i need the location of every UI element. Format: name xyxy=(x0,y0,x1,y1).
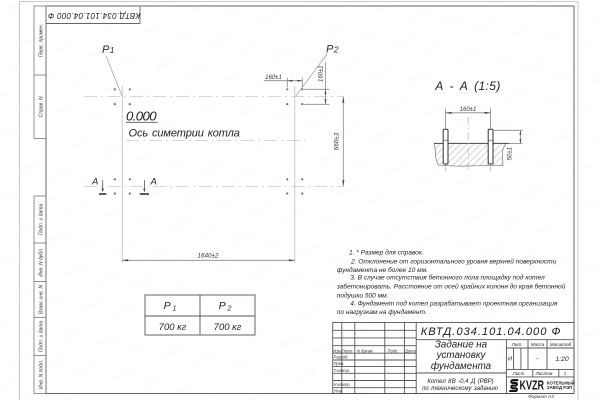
svg-text:Подп. и дата: Подп. и дата xyxy=(39,204,45,236)
svg-text:Инв. N подл.: Инв. N подл. xyxy=(39,360,45,389)
svg-text:подушки 500 мм.: подушки 500 мм. xyxy=(337,291,389,299)
svg-text:И: И xyxy=(508,357,512,363)
svg-text:КВТД.034.101.04.000 Ф: КВТД.034.101.04.000 Ф xyxy=(421,326,562,338)
svg-text:Разраб.: Разраб. xyxy=(334,355,349,360)
svg-text:установку: установку xyxy=(436,350,487,361)
svg-text:Перв. примен.: Перв. примен. xyxy=(39,24,45,57)
svg-text:Ось симетрии котла: Ось симетрии котла xyxy=(129,128,240,140)
svg-text:ЗАВОД РЭП: ЗАВОД РЭП xyxy=(547,385,572,390)
svg-text:1: 1 xyxy=(564,371,567,376)
svg-text:Изм.Лист: Изм.Лист xyxy=(333,348,353,353)
svg-text:3. В случае отсутствия бетонно: 3. В случае отсутствия бетонного пола пл… xyxy=(350,274,545,282)
svg-text:N докум.: N докум. xyxy=(357,348,374,353)
svg-text:Утв.: Утв. xyxy=(334,389,343,394)
svg-text:Масса: Масса xyxy=(531,342,545,347)
svg-text:Справ. N: Справ. N xyxy=(39,96,45,117)
svg-text:Масштаб: Масштаб xyxy=(550,342,572,347)
svg-text:Котел КВ -0,4 Д (РВР): Котел КВ -0,4 Д (РВР) xyxy=(427,379,493,385)
svg-text:фундамента не более 10 мм.: фундамента не более 10 мм. xyxy=(337,266,428,274)
svg-text:160±1: 160±1 xyxy=(460,107,477,113)
svg-text:Лит.: Лит. xyxy=(511,342,523,347)
svg-text:Дата: Дата xyxy=(404,348,417,353)
svg-text:KVZR: KVZR xyxy=(520,378,545,392)
svg-text:Формат А3: Формат А3 xyxy=(528,394,554,399)
svg-text:Т.контр.: Т.контр. xyxy=(334,368,351,373)
svg-text:700 кг: 700 кг xyxy=(159,322,187,333)
svg-text:Пров.: Пров. xyxy=(334,361,345,366)
svg-text:забетонировать. Расстояние от: забетонировать. Расстояние от осей крайн… xyxy=(336,283,566,291)
svg-text:Лист: Лист xyxy=(512,371,525,376)
svg-text:2. Отклонение от горизонтально: 2. Отклонение от горизонтального уровня … xyxy=(350,257,557,265)
svg-text:1. * Размер для справок.: 1. * Размер для справок. xyxy=(349,249,424,257)
svg-text:A: A xyxy=(91,177,98,188)
svg-text:1:20: 1:20 xyxy=(555,356,568,363)
svg-text:160±1: 160±1 xyxy=(318,65,324,82)
svg-text:A: A xyxy=(150,177,157,188)
svg-text:Н.контр.: Н.контр. xyxy=(334,382,351,387)
svg-text:160±1: 160±1 xyxy=(265,75,282,81)
svg-text:4. Фундамент под котел разраба: 4. Фундамент под котел разрабатывает про… xyxy=(350,300,558,308)
svg-text:Подп.: Подп. xyxy=(388,348,399,353)
svg-text:660±3: 660±3 xyxy=(334,132,341,150)
svg-text:по нагрузкам на фундамент.: по нагрузкам на фундамент. xyxy=(337,308,427,316)
svg-text:P1: P1 xyxy=(102,44,115,56)
svg-text:A - A (1:5): A - A (1:5) xyxy=(434,79,501,93)
svg-text:P2: P2 xyxy=(326,44,339,56)
svg-text:700 кг: 700 кг xyxy=(214,322,242,333)
svg-text:Подп. и дата: Подп. и дата xyxy=(39,321,45,353)
svg-text:по техническому заданию: по техническому заданию xyxy=(422,386,498,392)
svg-text:0.000: 0.000 xyxy=(126,108,157,123)
svg-text:50±1: 50±1 xyxy=(508,147,514,160)
svg-text:КВТД.034.101.04.000 Ф: КВТД.034.101.04.000 Ф xyxy=(47,11,140,20)
svg-text:Задание на: Задание на xyxy=(435,340,488,351)
svg-text:1640±2: 1640±2 xyxy=(198,253,219,260)
svg-text:фундамента: фундамента xyxy=(431,361,492,372)
svg-text:Взам. инв. N: Взам. инв. N xyxy=(39,285,45,315)
svg-text:Листов: Листов xyxy=(535,371,553,376)
svg-text:Инв. N дубл.: Инв. N дубл. xyxy=(39,248,45,277)
